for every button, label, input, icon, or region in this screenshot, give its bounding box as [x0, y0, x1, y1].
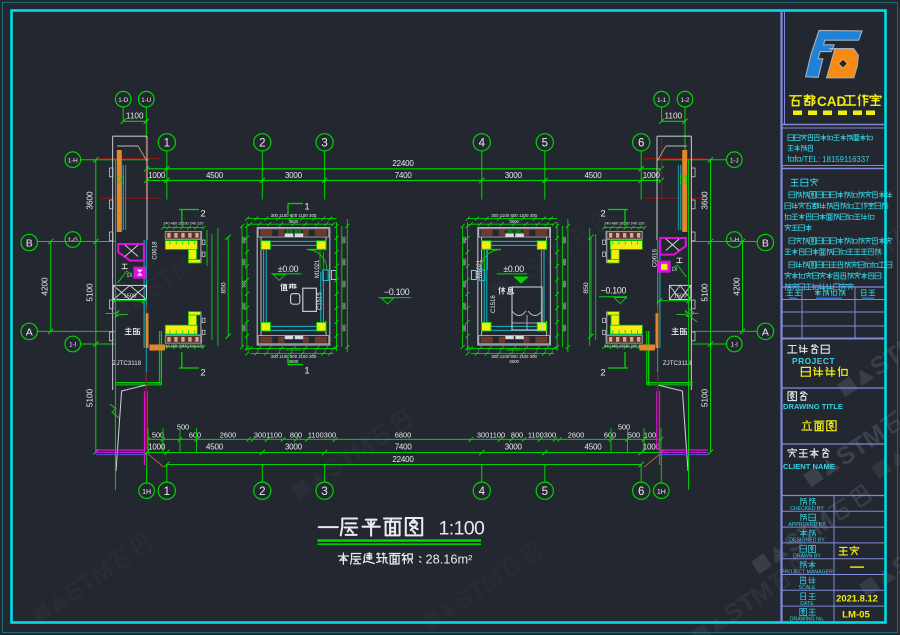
svg-text:900: 900 — [241, 258, 246, 266]
svg-text:1H: 1H — [142, 489, 151, 496]
svg-text:4500: 4500 — [206, 442, 224, 451]
svg-text:1100: 1100 — [664, 112, 682, 121]
svg-text:4500: 4500 — [585, 171, 603, 180]
svg-text:500: 500 — [177, 423, 189, 432]
svg-text:5100: 5100 — [700, 388, 709, 407]
svg-text:900: 900 — [341, 302, 346, 310]
svg-text:5: 5 — [542, 137, 548, 149]
svg-text:1-2: 1-2 — [681, 97, 691, 104]
svg-text:6: 6 — [638, 137, 644, 149]
svg-text:500: 500 — [152, 431, 164, 440]
svg-text:C0618: C0618 — [152, 241, 159, 260]
svg-text:900: 900 — [462, 302, 467, 310]
svg-text:1500: 1500 — [674, 293, 687, 299]
svg-text:4200: 4200 — [41, 277, 50, 296]
svg-text:4200: 4200 — [732, 277, 741, 296]
svg-text:1-I: 1-I — [731, 342, 739, 349]
svg-text:2: 2 — [200, 209, 205, 220]
svg-text:22400: 22400 — [392, 455, 414, 464]
svg-text:600: 600 — [604, 431, 616, 440]
svg-text:5100: 5100 — [86, 283, 95, 302]
svg-text:100: 100 — [644, 431, 656, 440]
svg-text:1: 1 — [164, 137, 170, 149]
svg-text:DRAWING TITLE: DRAWING TITLE — [783, 402, 843, 411]
svg-text:3600: 3600 — [289, 219, 299, 224]
svg-text:22400: 22400 — [392, 159, 414, 168]
svg-text:1H: 1H — [657, 489, 666, 496]
svg-text:3000: 3000 — [505, 171, 523, 180]
svg-text:ZJTC3118: ZJTC3118 — [663, 360, 692, 367]
svg-text:800: 800 — [290, 431, 302, 440]
svg-text:1500: 1500 — [123, 293, 136, 299]
svg-text:1-G: 1-G — [68, 237, 79, 244]
svg-text:/TEL: 18159116337: /TEL: 18159116337 — [802, 155, 870, 164]
svg-text:300 300: 300 300 — [507, 229, 523, 234]
svg-text:1-I: 1-I — [69, 342, 77, 349]
svg-text:7400: 7400 — [395, 442, 413, 451]
svg-text:300 300: 300 300 — [286, 229, 302, 234]
svg-text:5: 5 — [542, 486, 548, 498]
svg-text:900: 900 — [562, 324, 567, 332]
svg-text:240 480 10530 240 120: 240 480 10530 240 120 — [604, 344, 644, 348]
svg-text:4500: 4500 — [585, 442, 603, 451]
svg-text:900: 900 — [341, 324, 346, 332]
svg-text:×: × — [119, 178, 122, 184]
svg-text:1000: 1000 — [148, 171, 166, 180]
svg-text:900: 900 — [241, 280, 246, 288]
svg-text:1: 1 — [304, 366, 309, 377]
svg-text:5100: 5100 — [86, 388, 95, 407]
svg-text:240 480 10530 240 120: 240 480 10530 240 120 — [163, 221, 203, 225]
svg-text:900: 900 — [341, 258, 346, 266]
svg-text:ZJTC3118: ZJTC3118 — [113, 360, 142, 367]
svg-text:1-U: 1-U — [141, 97, 151, 104]
svg-text:900: 900 — [462, 258, 467, 266]
svg-text:B: B — [762, 238, 769, 250]
svg-text:±0.00: ±0.00 — [278, 264, 299, 274]
svg-text:3001100: 3001100 — [254, 431, 282, 440]
svg-text:±0.00: ±0.00 — [503, 264, 524, 274]
svg-text:900: 900 — [562, 302, 567, 310]
svg-text:1: 1 — [164, 486, 170, 498]
svg-text:6: 6 — [638, 486, 644, 498]
svg-text:900: 900 — [241, 302, 246, 310]
svg-text:850: 850 — [220, 282, 227, 294]
svg-text:−0.100: −0.100 — [601, 286, 627, 296]
svg-text:300 1100 800 1100 300: 300 1100 800 1100 300 — [271, 354, 317, 359]
svg-text:1: 1 — [304, 202, 309, 213]
svg-text:PROJECT: PROJECT — [792, 356, 835, 366]
svg-text:LM-05: LM-05 — [842, 609, 870, 620]
svg-text:300 1100 800 1100 300: 300 1100 800 1100 300 — [491, 354, 537, 359]
svg-text:2: 2 — [200, 368, 205, 379]
svg-text:C1516: C1516 — [491, 295, 497, 313]
svg-text:3600: 3600 — [700, 191, 709, 210]
svg-text:1-1: 1-1 — [657, 97, 667, 104]
svg-text:2: 2 — [259, 486, 265, 498]
svg-text:850: 850 — [583, 282, 590, 294]
svg-text:900: 900 — [341, 236, 346, 244]
svg-text:1X: 1X — [127, 273, 134, 279]
svg-text:900: 900 — [562, 280, 567, 288]
svg-text:240 480 10530 240 120: 240 480 10530 240 120 — [163, 344, 203, 348]
svg-text:5100: 5100 — [700, 283, 709, 302]
svg-text:900: 900 — [562, 258, 567, 266]
svg-text:3000: 3000 — [285, 442, 303, 451]
svg-text:1100: 1100 — [126, 112, 144, 121]
svg-text:2021.8.12: 2021.8.12 — [836, 593, 878, 604]
svg-text:1:100: 1:100 — [439, 518, 486, 540]
svg-text:3600: 3600 — [509, 219, 519, 224]
svg-text:3000: 3000 — [285, 171, 303, 180]
svg-text:2: 2 — [259, 137, 265, 149]
svg-text:2: 2 — [600, 368, 605, 379]
svg-text:1-D: 1-D — [118, 97, 129, 104]
svg-text:600: 600 — [189, 431, 201, 440]
svg-text:CAD: CAD — [817, 94, 846, 109]
svg-text:1-J: 1-J — [730, 157, 739, 164]
svg-text:4500: 4500 — [206, 171, 224, 180]
svg-text:B: B — [26, 238, 33, 250]
svg-text:3600: 3600 — [289, 359, 299, 364]
svg-text:900: 900 — [241, 324, 246, 332]
svg-text:4: 4 — [479, 137, 486, 149]
svg-text:500: 500 — [628, 431, 640, 440]
svg-text:300 1100 800 1100 300: 300 1100 800 1100 300 — [271, 213, 317, 218]
svg-text:1-H: 1-H — [729, 237, 739, 244]
svg-text:900: 900 — [241, 236, 246, 244]
svg-text:3: 3 — [321, 137, 327, 149]
svg-text:900: 900 — [462, 236, 467, 244]
svg-text:6800: 6800 — [395, 431, 411, 440]
svg-text:900: 900 — [462, 280, 467, 288]
svg-text:2600: 2600 — [568, 431, 584, 440]
svg-text:CLIENT NAME: CLIENT NAME — [783, 462, 835, 471]
svg-text:DRAWING No.: DRAWING No. — [790, 617, 824, 623]
svg-text:900: 900 — [562, 236, 567, 244]
svg-text:7400: 7400 — [395, 171, 413, 180]
svg-text:28.16m²: 28.16m² — [426, 551, 474, 566]
svg-text:1100300: 1100300 — [528, 431, 556, 440]
svg-text:2600: 2600 — [220, 431, 236, 440]
svg-text:M1021: M1021 — [477, 259, 483, 278]
svg-text:−0.100: −0.100 — [384, 287, 410, 297]
svg-text:A: A — [26, 327, 33, 339]
svg-text:4: 4 — [479, 486, 486, 498]
svg-text:3600: 3600 — [86, 191, 95, 210]
svg-text:1000: 1000 — [148, 442, 166, 451]
svg-text:800: 800 — [511, 431, 523, 440]
svg-text:C1515: C1515 — [318, 292, 324, 310]
svg-text:3: 3 — [321, 486, 327, 498]
svg-text:1-H: 1-H — [68, 157, 78, 164]
svg-text:240 480 10530 240 120: 240 480 10530 240 120 — [604, 221, 644, 225]
svg-text:1100300: 1100300 — [308, 431, 336, 440]
svg-text:3600: 3600 — [509, 359, 519, 364]
svg-text:300 1100 800 1100 300: 300 1100 800 1100 300 — [491, 213, 537, 218]
svg-text:900: 900 — [341, 280, 346, 288]
svg-text:3001100: 3001100 — [477, 431, 505, 440]
svg-text:1000: 1000 — [643, 171, 661, 180]
svg-text:900: 900 — [462, 324, 467, 332]
svg-text:2: 2 — [600, 209, 605, 220]
svg-text:3000: 3000 — [505, 442, 523, 451]
svg-text:A: A — [762, 327, 769, 339]
